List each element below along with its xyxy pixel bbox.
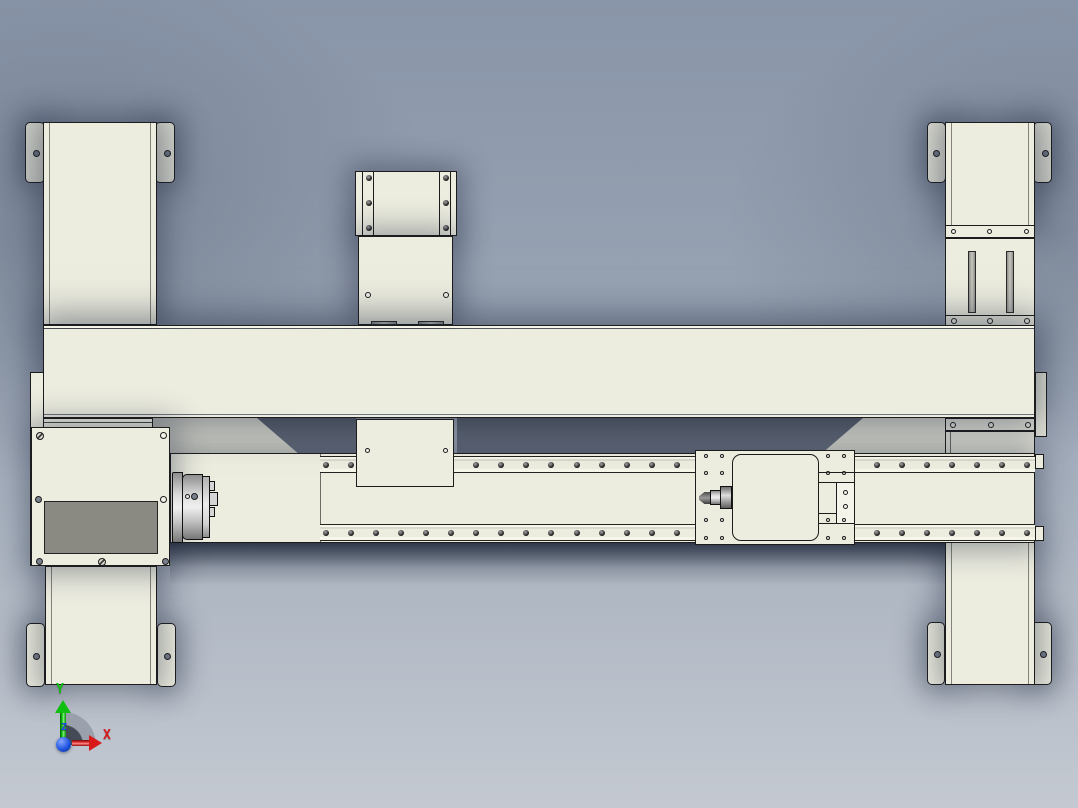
hole-detail xyxy=(826,454,830,458)
bolt-detail xyxy=(366,200,372,206)
rail-end-cap xyxy=(1035,454,1044,469)
pin-detail xyxy=(934,651,941,658)
hole-detail xyxy=(1024,229,1029,234)
hole-detail xyxy=(185,494,190,499)
rail-bolt xyxy=(1024,462,1030,468)
column-right-lower-flange[interactable] xyxy=(945,418,1035,431)
column-top-right-slotted-plate[interactable] xyxy=(945,238,1035,316)
cross-beam[interactable] xyxy=(43,325,1035,418)
bolt-detail xyxy=(443,200,449,206)
pin-detail xyxy=(191,493,198,500)
hole-detail xyxy=(842,454,846,458)
hole-detail xyxy=(365,292,371,298)
rail-bolt xyxy=(348,462,354,468)
rail-bolt xyxy=(674,530,680,536)
rail-end-cap xyxy=(1035,526,1044,541)
column-top-right-flange[interactable] xyxy=(945,225,1035,238)
chuck-jaw xyxy=(209,492,218,506)
foot-tab[interactable] xyxy=(927,122,946,183)
rail-bolt xyxy=(448,530,454,536)
rail-bolt xyxy=(599,462,605,468)
hole-detail xyxy=(987,318,993,324)
x-axis-shaft[interactable] xyxy=(72,740,89,746)
rail-bolt xyxy=(899,462,905,468)
tailstock-collar xyxy=(720,486,732,509)
rail-bolt xyxy=(423,530,429,536)
column-top-left[interactable] xyxy=(43,122,157,325)
screw-detail xyxy=(36,432,44,440)
foot-tab[interactable] xyxy=(927,622,945,685)
rail-bolt xyxy=(974,462,980,468)
rail-bolt xyxy=(949,462,955,468)
rail-bolt xyxy=(924,462,930,468)
hole-detail xyxy=(987,229,992,234)
pin-detail xyxy=(33,653,40,660)
pin-detail xyxy=(33,150,40,157)
y-axis-label: Y xyxy=(56,682,64,697)
hole-detail xyxy=(842,518,846,522)
cad-viewport[interactable]: Y Z X xyxy=(0,0,1078,808)
x-axis-label: X xyxy=(103,728,111,743)
beam-side-tab-right[interactable] xyxy=(1035,372,1047,437)
z-slide-lower-plate[interactable] xyxy=(356,419,454,487)
hole-detail xyxy=(951,229,956,234)
rail-bolt xyxy=(498,462,504,468)
rail-bolt xyxy=(624,462,630,468)
pin-detail xyxy=(1042,150,1049,157)
rail-bolt xyxy=(323,530,329,536)
slot-detail xyxy=(1006,251,1014,313)
rail-bolt xyxy=(649,530,655,536)
hole-detail xyxy=(950,422,956,428)
rail-bolt xyxy=(523,530,529,536)
foot-tab[interactable] xyxy=(26,623,45,687)
rail-bolt xyxy=(624,530,630,536)
rail-bolt xyxy=(348,530,354,536)
foot-tab[interactable] xyxy=(155,122,175,183)
hole-detail xyxy=(951,318,957,324)
rail-bolt xyxy=(574,530,580,536)
hole-detail xyxy=(720,536,724,540)
y-axis-arrow-icon[interactable] xyxy=(55,700,71,713)
rail-bolt xyxy=(974,530,980,536)
hole-detail xyxy=(443,292,449,298)
hole-detail xyxy=(704,471,708,475)
column-top-right[interactable] xyxy=(945,122,1035,226)
hole-detail xyxy=(988,422,994,428)
foot-tab[interactable] xyxy=(1033,122,1052,183)
column-bottom-left[interactable] xyxy=(45,566,157,685)
pin-detail xyxy=(1040,651,1047,658)
rail-bolt xyxy=(523,462,529,468)
chuck-body xyxy=(182,474,203,540)
rail-bolt xyxy=(398,530,404,536)
hole-detail xyxy=(843,504,848,509)
rail-bolt xyxy=(323,462,329,468)
screw-detail xyxy=(98,558,106,566)
z-axis-label: Z xyxy=(61,722,67,733)
foot-tab[interactable] xyxy=(25,122,45,183)
bolt-detail xyxy=(366,225,372,231)
bolt-detail xyxy=(443,175,449,181)
chuck-jaw xyxy=(209,481,215,491)
pin-detail xyxy=(35,496,42,503)
headstock-box[interactable] xyxy=(31,427,170,566)
rail-bolt xyxy=(599,530,605,536)
rail-bolt xyxy=(574,462,580,468)
hole-detail xyxy=(160,432,167,439)
rail-bolt xyxy=(548,530,554,536)
pin-detail xyxy=(164,653,171,660)
hole-detail xyxy=(720,518,724,522)
headstock-motor-panel xyxy=(44,501,158,554)
hole-detail xyxy=(1024,318,1030,324)
carriage-housing xyxy=(732,454,819,541)
hole-detail xyxy=(826,471,830,475)
rail-bolt xyxy=(498,530,504,536)
z-slide-upper[interactable] xyxy=(355,171,457,236)
rail-bolt xyxy=(548,462,554,468)
foot-tab[interactable] xyxy=(157,623,176,687)
rail-bolt xyxy=(874,462,880,468)
rail-bolt xyxy=(674,462,680,468)
view-triad: Y Z X xyxy=(28,682,124,778)
rail-bolt xyxy=(649,462,655,468)
column-bottom-right[interactable] xyxy=(945,540,1035,685)
bolt-detail xyxy=(443,225,449,231)
rail-bolt xyxy=(373,530,379,536)
pin-detail xyxy=(933,150,940,157)
linear-rail-bottom[interactable] xyxy=(320,524,1035,541)
hole-detail xyxy=(843,490,848,495)
rail-bolt xyxy=(924,530,930,536)
hole-detail xyxy=(842,471,846,475)
hole-detail xyxy=(443,448,448,453)
pin-detail xyxy=(162,558,169,565)
rail-bolt xyxy=(874,530,880,536)
bed-drop-shadow xyxy=(170,543,1035,585)
bolt-detail xyxy=(366,175,372,181)
z-slide-plate[interactable] xyxy=(358,236,453,325)
rail-bolt xyxy=(999,530,1005,536)
hole-detail xyxy=(720,471,724,475)
hole-detail xyxy=(826,518,830,522)
z-axis-origin-sphere[interactable] xyxy=(56,737,71,752)
hole-detail xyxy=(826,536,830,540)
rail-bolt xyxy=(899,530,905,536)
rail-bolt xyxy=(949,530,955,536)
hole-detail xyxy=(160,496,167,503)
hole-detail xyxy=(704,536,708,540)
hole-detail xyxy=(842,536,846,540)
carriage[interactable] xyxy=(695,450,855,545)
hole-detail xyxy=(365,448,370,453)
rail-bolt xyxy=(1024,530,1030,536)
rail-bolt xyxy=(999,462,1005,468)
slot-detail xyxy=(968,251,976,313)
hole-detail xyxy=(704,518,708,522)
x-axis-arrow-icon[interactable] xyxy=(89,735,102,751)
three-jaw-chuck[interactable] xyxy=(171,470,219,546)
machine-bed[interactable] xyxy=(170,453,1035,543)
pin-detail xyxy=(36,558,43,565)
rail-bolt xyxy=(473,462,479,468)
edge-line xyxy=(950,432,951,455)
hole-detail xyxy=(704,454,708,458)
hole-detail xyxy=(1025,422,1031,428)
pin-detail xyxy=(164,150,171,157)
rail-bolt xyxy=(473,530,479,536)
chuck-jaw xyxy=(209,507,215,517)
hole-detail xyxy=(720,454,724,458)
